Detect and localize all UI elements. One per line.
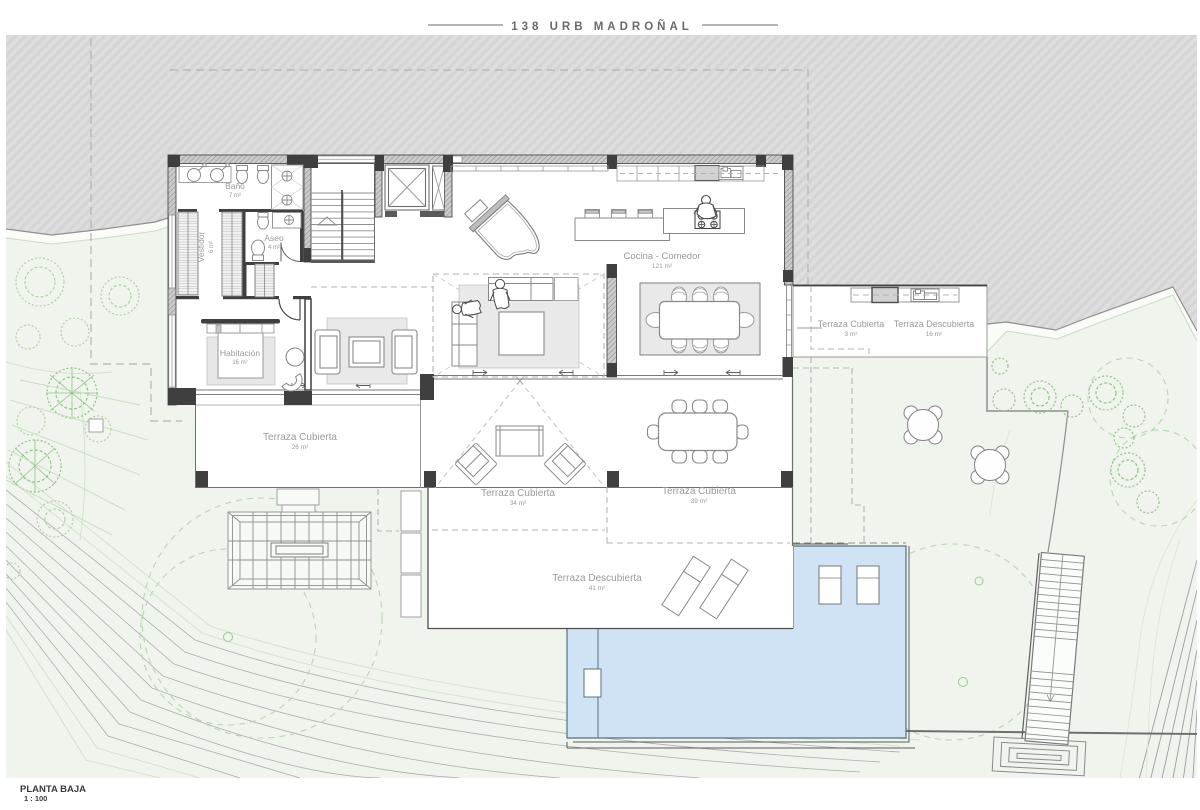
svg-text:Habitación: Habitación — [220, 348, 260, 358]
svg-text:7 m²: 7 m² — [229, 193, 241, 199]
svg-text:4 m²: 4 m² — [268, 245, 280, 251]
svg-text:Terraza Descubierta: Terraza Descubierta — [552, 573, 642, 584]
svg-text:3 m²: 3 m² — [845, 331, 859, 338]
svg-text:Aseo: Aseo — [264, 233, 284, 243]
svg-text:Baño: Baño — [225, 181, 245, 191]
svg-text:Terraza Cubierta: Terraza Cubierta — [263, 432, 337, 443]
svg-text:138 URB MADROÑAL: 138 URB MADROÑAL — [511, 20, 693, 33]
svg-text:Terraza Cubierta: Terraza Cubierta — [818, 319, 885, 329]
svg-text:41 m²: 41 m² — [589, 585, 606, 592]
svg-text:Terraza Descubierta: Terraza Descubierta — [894, 319, 975, 329]
svg-text:6 m²: 6 m² — [209, 241, 215, 253]
svg-text:Terraza Cubierta: Terraza Cubierta — [481, 488, 555, 499]
svg-text:16 m²: 16 m² — [232, 360, 247, 366]
svg-text:26 m²: 26 m² — [292, 444, 309, 451]
svg-text:Cocina - Comedor: Cocina - Comedor — [623, 251, 700, 262]
svg-text:Terraza Cubierta: Terraza Cubierta — [662, 486, 736, 497]
svg-text:39 m²: 39 m² — [691, 498, 708, 505]
svg-text:1 : 100: 1 : 100 — [24, 794, 47, 803]
svg-text:121 m²: 121 m² — [652, 263, 673, 270]
svg-text:Vestidor: Vestidor — [196, 231, 206, 262]
svg-text:34 m²: 34 m² — [510, 500, 527, 507]
svg-text:16 m²: 16 m² — [926, 331, 943, 338]
